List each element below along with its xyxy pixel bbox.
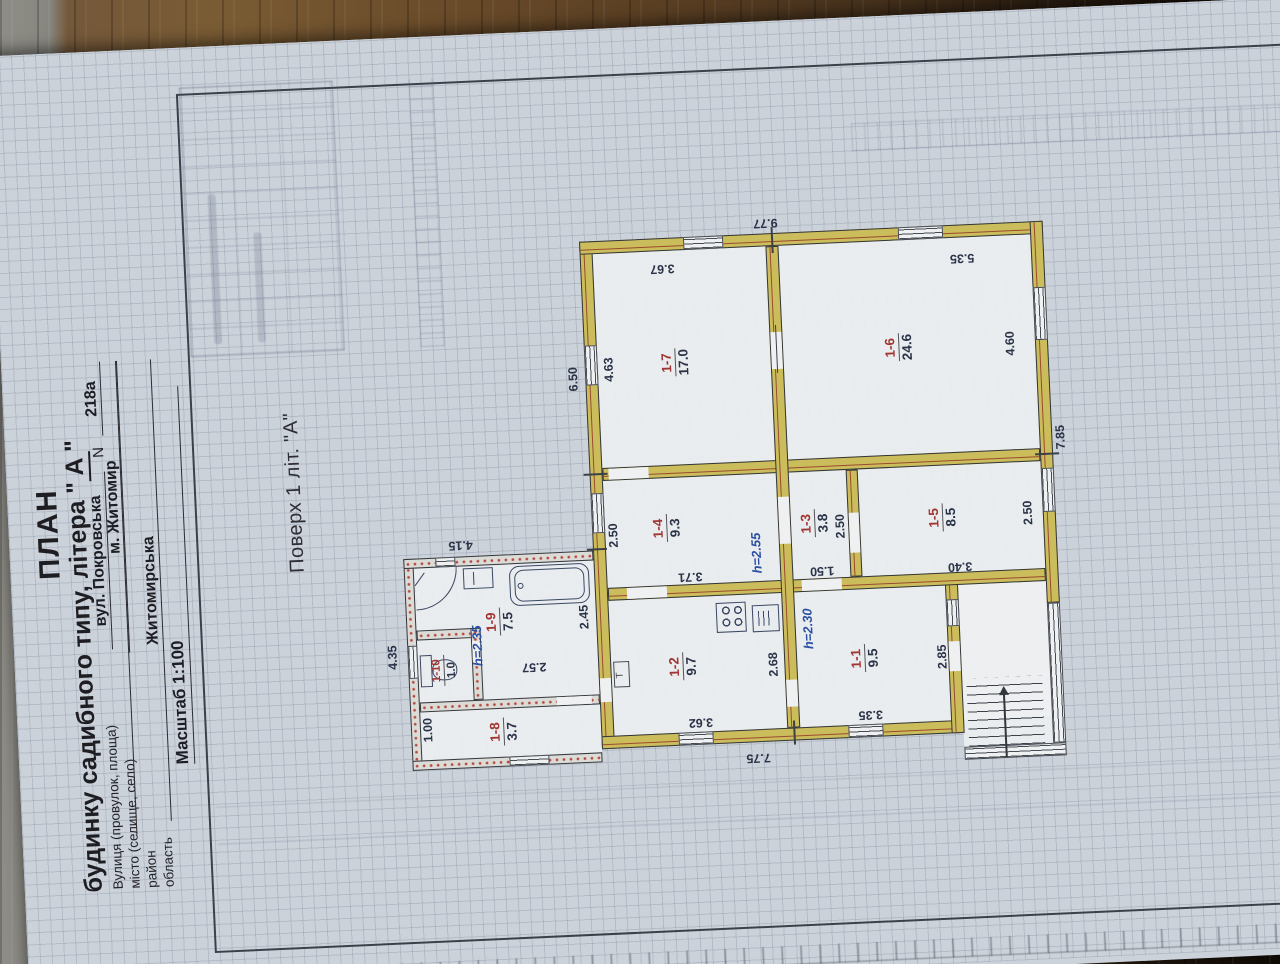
photo-background: ПЛАН будинку садибного типу, літера "А" … (0, 0, 1280, 964)
field-label-region: область (160, 837, 177, 888)
door-room3-room5 (849, 512, 861, 552)
window-room7-top (584, 345, 599, 386)
window-room6-bottom (1033, 287, 1048, 341)
field-label-district: район (143, 850, 160, 888)
dim-room7-height: 3.67 (650, 262, 675, 277)
dim-room3-width: 2.50 (833, 514, 848, 539)
dim-room1-width: 2.85 (935, 644, 950, 669)
room-label-1-6: 1-624.6 (883, 333, 916, 362)
window-corridor-left (509, 755, 549, 767)
dim-bathroom-2-57: 2.57 (522, 660, 547, 675)
dim-room4-width: 2.50 (606, 523, 621, 548)
room-area: 17.0 (675, 348, 691, 376)
bathtub-inner-icon (514, 567, 585, 602)
dim-room7-width: 4.63 (601, 357, 616, 382)
room-number: 1-10 (430, 655, 445, 687)
room-number: 1-1 (849, 644, 866, 672)
dim-right-9-77: 9.77 (753, 216, 778, 231)
room-area: 9.7 (683, 652, 699, 680)
room-area: 1.0 (444, 654, 458, 686)
boiler-icon (463, 567, 494, 589)
subtitle-suffix: " (59, 439, 88, 452)
dim-room5-width: 2.50 (1020, 500, 1035, 525)
door-room2-room4 (627, 586, 667, 599)
room-label-1-3: 1-33.8 (799, 509, 832, 538)
door-room4-room7 (608, 467, 648, 480)
room-label-1-1: 1-19.5 (849, 644, 882, 673)
room-area: 3.8 (815, 509, 831, 537)
dim-annex-height: 4.15 (448, 538, 473, 553)
kitchen-boiler-icon: Т (613, 661, 630, 688)
room-label-1-10: 1-101.0 (430, 654, 459, 686)
window-room4-top (590, 493, 605, 534)
room-area: 9.3 (667, 514, 683, 542)
field-label-city: місто (селище, село) (122, 759, 143, 889)
dim-room5-height: 3.40 (948, 559, 973, 574)
room-area: 7.5 (500, 607, 516, 635)
room-number: 1-4 (651, 514, 668, 542)
door-room4-room3 (778, 497, 791, 544)
dim-room6-width: 4.60 (1003, 331, 1018, 356)
room-label-1-7: 1-717.0 (659, 348, 692, 377)
dim-room4-height: 3.71 (678, 570, 703, 585)
room-number: 1-5 (927, 504, 944, 532)
room-label-1-4: 1-49.3 (651, 514, 684, 543)
window-room1-left (848, 724, 884, 739)
room-number: 1-2 (667, 653, 684, 681)
dim-left-7-75: 7.75 (746, 751, 771, 766)
door-corridor-bathroom (557, 696, 592, 706)
window-porch-wall (946, 599, 960, 627)
door-hall-to-room2 (600, 678, 612, 702)
window-annex-top (407, 646, 418, 679)
dim-annex-width: 4.35 (385, 645, 400, 670)
room-label-1-8: 1-83.7 (488, 717, 521, 746)
dim-room2-height: 3.62 (688, 715, 713, 730)
window-room5-bottom (1041, 468, 1056, 513)
dim-bathroom-2-45: 2.45 (576, 604, 591, 629)
height-label-room4: h=2.55 (748, 532, 765, 573)
room-label-1-5: 1-58.5 (927, 503, 960, 532)
window-room7-right (683, 235, 724, 250)
boiler-t-mark: Т (615, 672, 626, 679)
dim-corridor-width: 1.00 (420, 718, 435, 743)
room-area: 9.5 (865, 644, 881, 672)
room-number: 1-3 (799, 510, 816, 538)
dim-bottom-7-85: 7.85 (1053, 425, 1068, 450)
dim-top-6-50: 6.50 (566, 367, 581, 392)
dim-room1-height: 3.35 (858, 708, 883, 723)
window-room6-right (898, 225, 944, 240)
room-area: 3.7 (504, 717, 520, 745)
arrow-head-icon (999, 686, 1009, 695)
room-label-1-2: 1-29.7 (667, 652, 700, 681)
dim-room2-width: 2.68 (766, 652, 781, 677)
document-paper: ПЛАН будинку садибного типу, літера "А" … (0, 0, 1280, 964)
dim-room3-height: 1.50 (810, 564, 835, 579)
door-room1-room3 (802, 578, 842, 591)
door-room2-room1 (786, 679, 798, 706)
door-room1-porch (949, 641, 961, 671)
height-label-room1: h=2.30 (799, 608, 816, 649)
kitchen-sink-icon (752, 604, 780, 632)
window-room2-left (678, 731, 714, 746)
room-number: 1-8 (488, 718, 505, 746)
room-area: 24.6 (899, 333, 915, 361)
height-label-annex: h=2.35 (469, 625, 486, 666)
room-number: 1-6 (883, 334, 900, 362)
document-rotated-content: ПЛАН будинку садибного типу, літера "А" … (0, 0, 1280, 964)
room-number: 1-7 (659, 349, 676, 377)
stove-icon (716, 602, 747, 633)
room-area: 8.5 (943, 503, 959, 531)
room-label-1-9: 1-97.5 (484, 607, 517, 636)
room-number: 1-9 (484, 608, 501, 636)
dim-room6-height: 5.35 (950, 251, 975, 266)
